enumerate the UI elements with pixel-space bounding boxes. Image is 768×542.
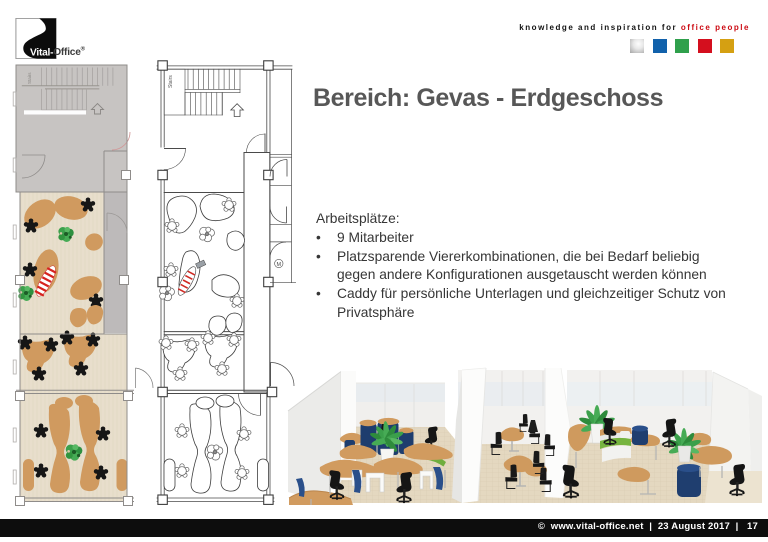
svg-text:Stairs: Stairs (168, 75, 174, 88)
svg-text:Stairs: Stairs (27, 72, 32, 84)
svg-text:M: M (277, 262, 282, 268)
